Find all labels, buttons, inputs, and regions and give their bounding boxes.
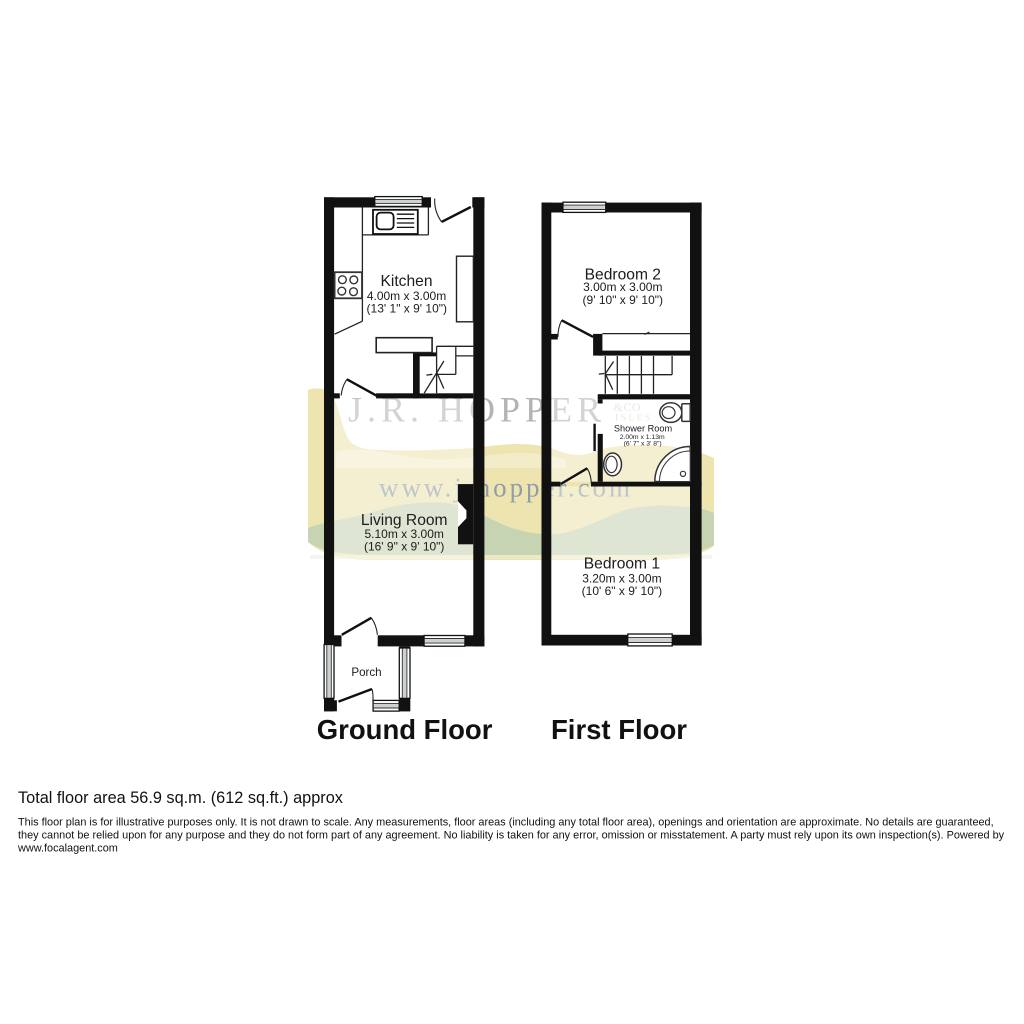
svg-text:(9' 10" x 9' 10"): (9' 10" x 9' 10") <box>583 293 663 307</box>
svg-text:(13' 1" x 9' 10"): (13' 1" x 9' 10") <box>367 302 447 316</box>
svg-text:Bedroom 1: Bedroom 1 <box>584 556 660 573</box>
svg-text:Ground Floor: Ground Floor <box>317 714 493 745</box>
svg-text:Porch: Porch <box>351 666 381 679</box>
svg-text:3.00m x 3.00m: 3.00m x 3.00m <box>583 280 662 294</box>
svg-text:(10' 6" x 9' 10"): (10' 6" x 9' 10") <box>582 584 662 598</box>
svg-text:(6' 7" x 3' 8"): (6' 7" x 3' 8") <box>624 441 662 448</box>
svg-text:First Floor: First Floor <box>551 714 687 745</box>
svg-text:(16' 9" x 9' 10"): (16' 9" x 9' 10") <box>364 540 444 554</box>
svg-text:This floor plan is for illustr: This floor plan is for illustrative purp… <box>18 817 994 829</box>
svg-text:Shower Room: Shower Room <box>614 424 673 434</box>
svg-text:Kitchen: Kitchen <box>380 273 432 290</box>
svg-text:Total floor area 56.9 sq.m. (6: Total floor area 56.9 sq.m. (612 sq.ft.)… <box>18 789 343 807</box>
svg-text:www.focalagent.com: www.focalagent.com <box>17 843 118 855</box>
svg-text:they cannot be relied upon for: they cannot be relied upon for any purpo… <box>18 830 1005 842</box>
